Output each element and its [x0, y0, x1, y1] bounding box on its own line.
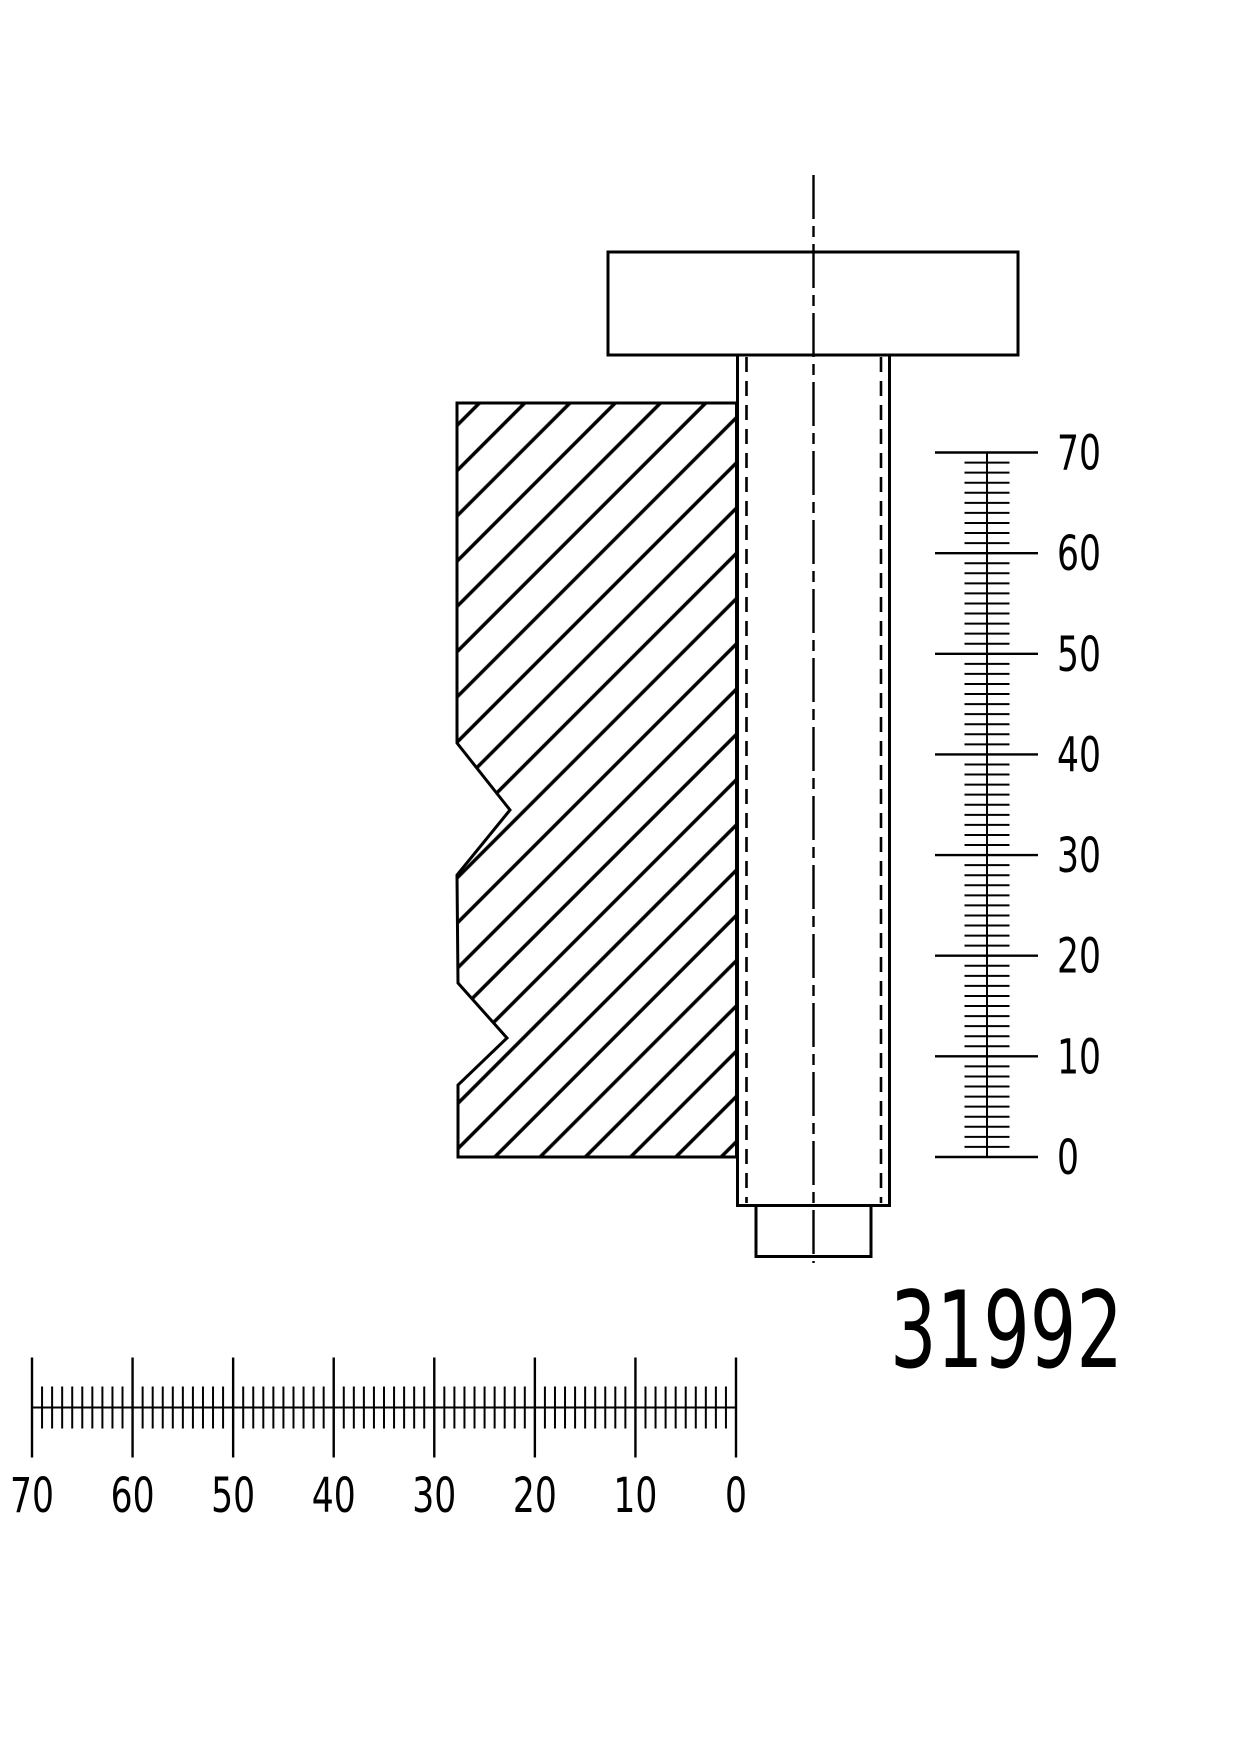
vertical-ruler: 706050403020100 — [935, 426, 1101, 1187]
drawing-page: 706050403020100 706050403020100 31992 — [0, 0, 1237, 1750]
vertical-ruler-label: 70 — [1057, 426, 1101, 482]
horizontal-ruler-label: 30 — [412, 1468, 456, 1524]
vertical-ruler-label: 20 — [1057, 929, 1101, 985]
horizontal-ruler-label: 50 — [211, 1468, 255, 1524]
horizontal-ruler-label: 60 — [111, 1468, 155, 1524]
horizontal-ruler-label: 10 — [613, 1468, 657, 1524]
vertical-ruler-label: 0 — [1057, 1130, 1079, 1186]
horizontal-ruler-label: 70 — [10, 1468, 54, 1524]
vertical-ruler-label: 40 — [1057, 727, 1101, 783]
vertical-ruler-label: 50 — [1057, 627, 1101, 683]
horizontal-ruler: 706050403020100 — [10, 1358, 747, 1525]
vertical-ruler-label: 10 — [1057, 1029, 1101, 1085]
horizontal-ruler-label: 40 — [312, 1468, 356, 1524]
part-number: 31992 — [890, 1269, 1123, 1392]
technical-drawing-canvas: 706050403020100 706050403020100 31992 — [0, 0, 1237, 1750]
horizontal-ruler-label: 0 — [725, 1468, 747, 1524]
horizontal-ruler-label: 20 — [513, 1468, 557, 1524]
vertical-ruler-label: 30 — [1057, 828, 1101, 884]
vertical-ruler-label: 60 — [1057, 526, 1101, 582]
clamped-block — [457, 403, 737, 1157]
